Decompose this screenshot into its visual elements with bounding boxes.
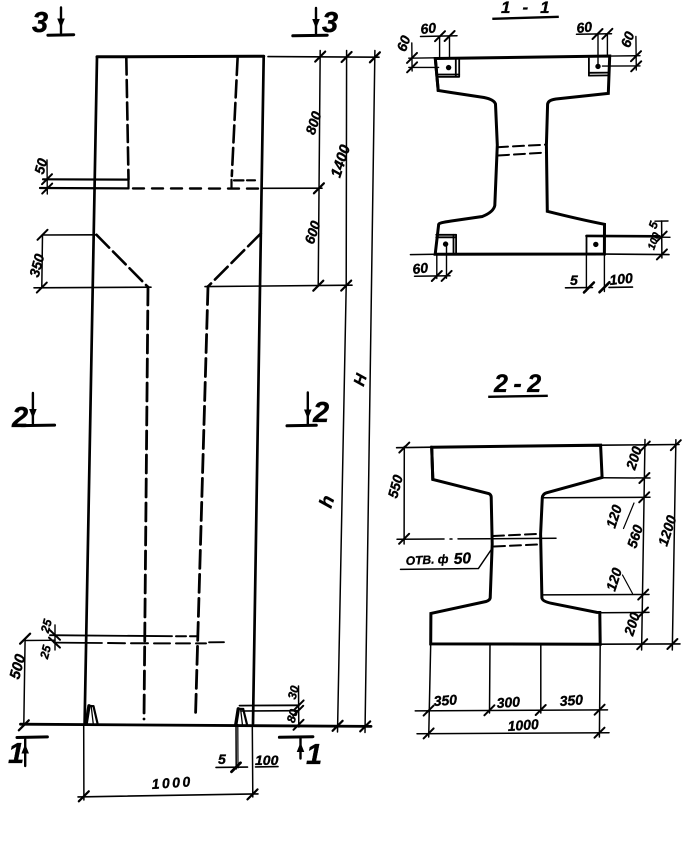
svg-text:60: 60 [412,259,429,277]
svg-text:60: 60 [576,18,593,36]
svg-text:300: 300 [496,693,521,711]
svg-text:1: 1 [8,738,24,770]
svg-text:5: 5 [570,272,578,288]
svg-text:350: 350 [433,691,458,709]
svg-text:3: 3 [322,7,338,39]
svg-text:50: 50 [453,550,471,568]
svg-text:100: 100 [609,270,634,288]
svg-text:5: 5 [218,751,226,767]
svg-text:1000: 1000 [507,716,539,734]
svg-text:60: 60 [420,19,437,37]
svg-text:3: 3 [32,7,48,39]
svg-text:2-2: 2-2 [493,370,547,398]
svg-text:1000: 1000 [151,773,193,792]
svg-text:2: 2 [11,402,28,434]
svg-text:ОТВ. ф: ОТВ. ф [405,552,449,568]
svg-text:350: 350 [559,691,584,709]
svg-text:100: 100 [255,752,279,768]
svg-text:1: 1 [306,739,322,771]
svg-text:2: 2 [312,397,329,429]
svg-text:1-1: 1-1 [501,0,562,17]
